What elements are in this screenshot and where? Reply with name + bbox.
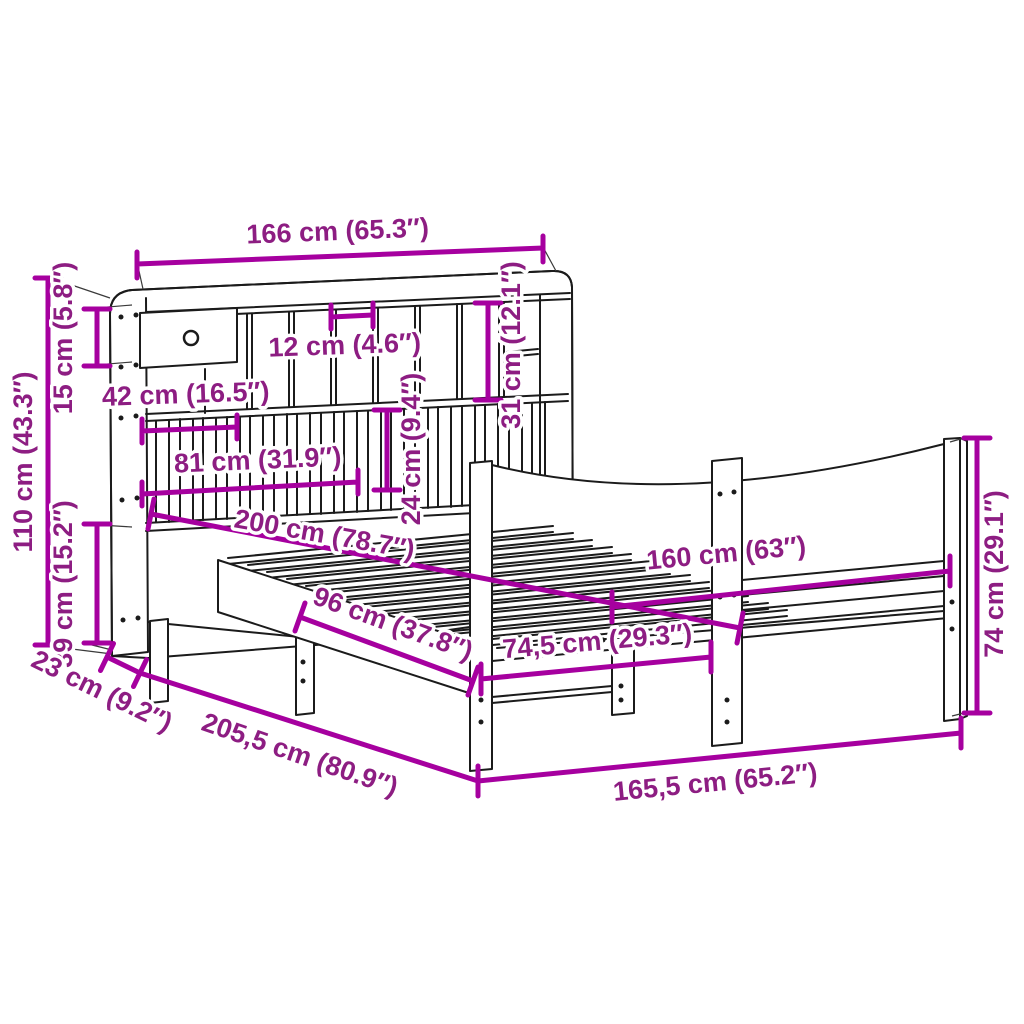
dim-label-total-length: 205,5 cm (80.9″) [198, 707, 402, 802]
dim-label-footboard-height: 74 cm (29.1″) [979, 490, 1009, 658]
bed-dimension-diagram: 166 cm (65.3″) 110 cm (43.3″) 15 cm (5.8… [0, 0, 1024, 1024]
dim-label-cubby-height: 31 cm (12.1″) [496, 261, 526, 429]
dim-label-headboard-width: 166 cm (65.3″) [246, 212, 430, 249]
dim-label-rail-floor-height: 39 cm (15.2″) [48, 500, 78, 668]
headboard-drawer [140, 308, 237, 368]
dim-label-top-shelf-height: 15 cm (5.8″) [48, 262, 78, 415]
dim-label-cubby-width: 12 cm (4.6″) [268, 327, 421, 362]
middle-leg [612, 648, 634, 715]
diagram-canvas: 166 cm (65.3″) 110 cm (43.3″) 15 cm (5.8… [0, 0, 1024, 1024]
dim-label-drawer-width: 42 cm (16.5″) [101, 376, 269, 412]
dim-line-top-shelf-height [84, 309, 110, 366]
footboard-center-post [712, 458, 742, 746]
headboard-leg-left [150, 619, 168, 703]
dim-label-slat-panel-height: 24 cm (9.4″) [396, 373, 426, 526]
dim-label-headboard-height: 110 cm (43.3″) [8, 371, 38, 552]
dim-line-rail-floor-height [84, 524, 110, 643]
headboard-leg-right [296, 635, 314, 715]
